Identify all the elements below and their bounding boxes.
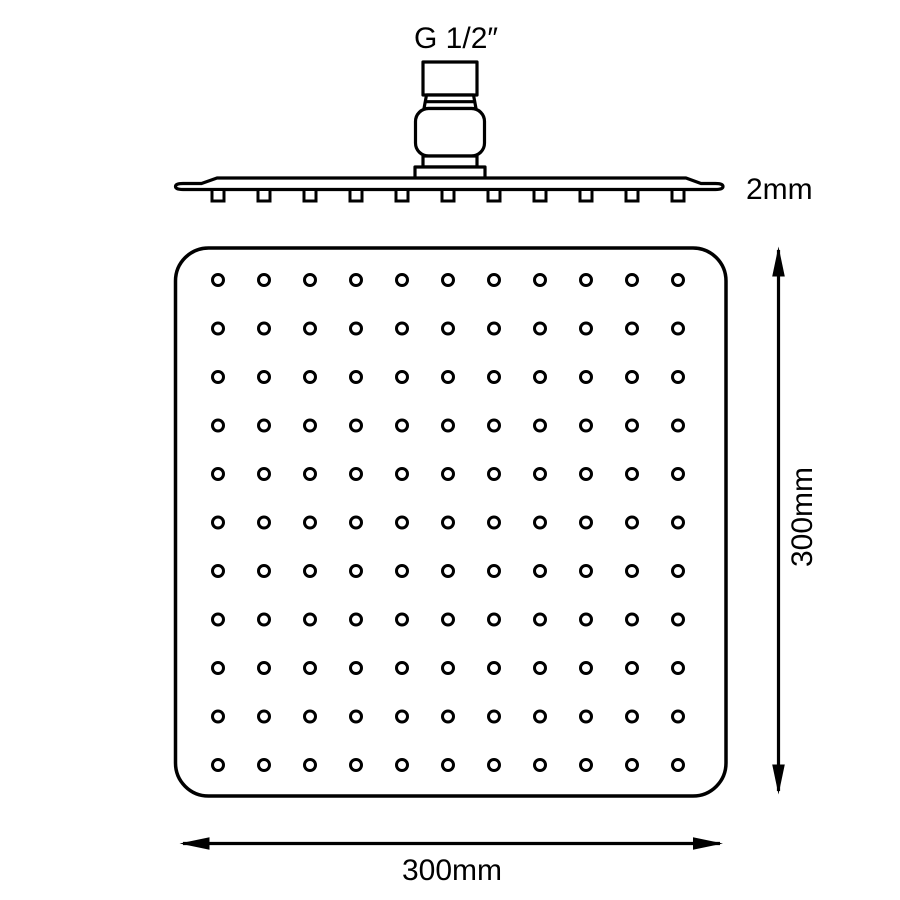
nozzle-hole	[443, 323, 454, 334]
height-dimension: 300mm	[772, 247, 819, 795]
nozzle-hole	[259, 711, 270, 722]
nozzle-hole	[443, 711, 454, 722]
nozzle-hole	[305, 517, 316, 528]
arrow-up-icon	[772, 247, 785, 277]
nozzle-hole	[581, 614, 592, 625]
nozzle-hole	[443, 275, 454, 286]
nozzle-hole	[581, 323, 592, 334]
height-dimension-label: 300mm	[786, 467, 819, 567]
nozzle-hole	[397, 469, 408, 480]
nozzle-hole	[443, 469, 454, 480]
nozzle-hole	[351, 711, 362, 722]
nozzle-hole	[443, 614, 454, 625]
nozzle-hole	[581, 711, 592, 722]
shower-head-technical-diagram: G 1/2″ 2mm	[0, 0, 900, 900]
nozzle-hole	[489, 517, 500, 528]
arrow-down-icon	[772, 765, 785, 795]
nozzle-hole	[351, 420, 362, 431]
nozzle-hole	[535, 760, 546, 771]
nozzle-hole	[627, 420, 638, 431]
nozzle-hole	[397, 663, 408, 674]
nozzle-hole	[351, 323, 362, 334]
nozzle-hole	[581, 469, 592, 480]
nozzle-hole	[305, 663, 316, 674]
nozzle-hole	[259, 372, 270, 383]
connector-barrel	[416, 109, 485, 157]
nozzle-hole	[213, 711, 224, 722]
nozzle-hole	[305, 469, 316, 480]
plate-side-profile	[176, 178, 724, 190]
nozzle-hole	[673, 323, 684, 334]
nozzle-hole	[627, 517, 638, 528]
nozzle-hole	[351, 760, 362, 771]
nozzle-hole	[673, 469, 684, 480]
nozzle-hole	[581, 517, 592, 528]
nozzle-hole	[535, 469, 546, 480]
nozzle-hole	[213, 372, 224, 383]
water-connector	[415, 62, 485, 180]
nozzle-hole	[213, 420, 224, 431]
nozzle-hole	[673, 760, 684, 771]
width-dimension-label: 300mm	[402, 854, 502, 887]
nozzle-hole	[627, 323, 638, 334]
nozzle-hole	[535, 372, 546, 383]
nozzle-hole	[305, 323, 316, 334]
nozzle-hole	[213, 663, 224, 674]
nozzle-hole	[443, 372, 454, 383]
nozzle-hole	[535, 323, 546, 334]
nozzle-hole	[213, 275, 224, 286]
nozzle-hole	[581, 275, 592, 286]
nozzle-hole	[489, 760, 500, 771]
nozzle-hole	[673, 663, 684, 674]
width-dimension: 300mm	[180, 837, 724, 887]
nozzle-hole	[489, 323, 500, 334]
nozzle-hole	[259, 323, 270, 334]
nozzle-hole	[443, 663, 454, 674]
nozzle-hole	[397, 711, 408, 722]
nozzle-hole	[673, 517, 684, 528]
nozzle-hole	[673, 711, 684, 722]
nozzle-hole	[351, 517, 362, 528]
nozzle-hole	[259, 275, 270, 286]
nozzle-tab	[580, 190, 592, 202]
nozzle-hole	[397, 323, 408, 334]
nozzle-tab	[534, 190, 546, 202]
nozzle-tab	[212, 190, 224, 202]
nozzle-hole	[305, 711, 316, 722]
nozzle-hole	[581, 420, 592, 431]
nozzle-hole	[627, 275, 638, 286]
nozzle-tab	[350, 190, 362, 202]
nozzle-hole	[259, 760, 270, 771]
nozzle-hole	[397, 372, 408, 383]
connector-band	[423, 156, 477, 167]
nozzle-hole	[627, 663, 638, 674]
nozzle-hole	[305, 275, 316, 286]
side-view: G 1/2″ 2mm	[176, 22, 813, 206]
nozzle-tab	[442, 190, 454, 202]
nozzle-hole	[443, 517, 454, 528]
nozzle-hole	[673, 420, 684, 431]
nozzle-hole	[535, 517, 546, 528]
nozzle-hole	[213, 469, 224, 480]
nozzle-hole	[581, 663, 592, 674]
thread-size-label: G 1/2″	[414, 22, 498, 55]
nozzle-hole	[489, 469, 500, 480]
nozzle-hole	[397, 614, 408, 625]
nozzle-hole	[397, 760, 408, 771]
nozzle-tab	[396, 190, 408, 202]
nozzle-hole	[627, 614, 638, 625]
nozzle-hole	[213, 760, 224, 771]
nozzle-hole	[305, 614, 316, 625]
nozzle-hole	[673, 566, 684, 577]
nozzle-hole	[627, 469, 638, 480]
nozzle-hole	[489, 663, 500, 674]
nozzle-hole	[535, 614, 546, 625]
nozzle-hole	[673, 372, 684, 383]
nozzle-hole	[535, 420, 546, 431]
diagram-canvas: G 1/2″ 2mm	[0, 0, 900, 900]
nozzle-hole	[351, 469, 362, 480]
nozzle-hole	[581, 566, 592, 577]
nozzle-tab	[672, 190, 684, 202]
nozzle-hole	[305, 372, 316, 383]
connector-thread-inlet	[423, 62, 477, 95]
nozzle-hole	[259, 420, 270, 431]
nozzle-hole	[443, 566, 454, 577]
nozzle-tabs	[212, 190, 684, 202]
nozzle-tab	[626, 190, 638, 202]
face-view	[176, 248, 727, 796]
nozzle-hole	[213, 517, 224, 528]
nozzle-hole	[213, 323, 224, 334]
nozzle-hole	[397, 275, 408, 286]
plate-thickness-label: 2mm	[746, 173, 813, 206]
nozzle-hole	[351, 663, 362, 674]
nozzle-hole	[581, 372, 592, 383]
nozzle-tab	[304, 190, 316, 202]
nozzle-hole	[259, 566, 270, 577]
nozzle-hole	[443, 760, 454, 771]
nozzle-hole	[627, 711, 638, 722]
nozzle-hole	[397, 566, 408, 577]
nozzle-hole	[581, 760, 592, 771]
nozzle-hole	[259, 469, 270, 480]
nozzle-hole	[351, 614, 362, 625]
nozzle-tab	[488, 190, 500, 202]
nozzle-hole	[535, 275, 546, 286]
nozzle-hole	[535, 566, 546, 577]
nozzle-hole	[443, 420, 454, 431]
nozzle-hole	[259, 614, 270, 625]
nozzle-hole	[305, 760, 316, 771]
nozzle-hole	[673, 275, 684, 286]
nozzle-tab	[258, 190, 270, 202]
nozzle-hole	[673, 614, 684, 625]
nozzle-hole	[627, 372, 638, 383]
arrow-left-icon	[180, 837, 210, 850]
nozzle-hole	[351, 275, 362, 286]
nozzle-hole	[535, 663, 546, 674]
nozzle-hole	[213, 614, 224, 625]
nozzle-hole	[397, 517, 408, 528]
nozzle-hole	[535, 711, 546, 722]
nozzle-hole	[259, 517, 270, 528]
nozzle-hole	[489, 614, 500, 625]
nozzle-hole	[489, 275, 500, 286]
nozzle-hole	[627, 566, 638, 577]
nozzle-hole	[489, 566, 500, 577]
nozzle-hole	[305, 420, 316, 431]
arrow-right-icon	[693, 837, 723, 850]
nozzle-hole	[351, 372, 362, 383]
nozzle-hole	[489, 372, 500, 383]
nozzle-hole	[489, 711, 500, 722]
nozzle-hole	[305, 566, 316, 577]
nozzle-hole	[627, 760, 638, 771]
nozzle-hole	[213, 566, 224, 577]
nozzle-hole	[489, 420, 500, 431]
nozzle-hole	[397, 420, 408, 431]
nozzle-hole	[351, 566, 362, 577]
nozzle-hole	[259, 663, 270, 674]
